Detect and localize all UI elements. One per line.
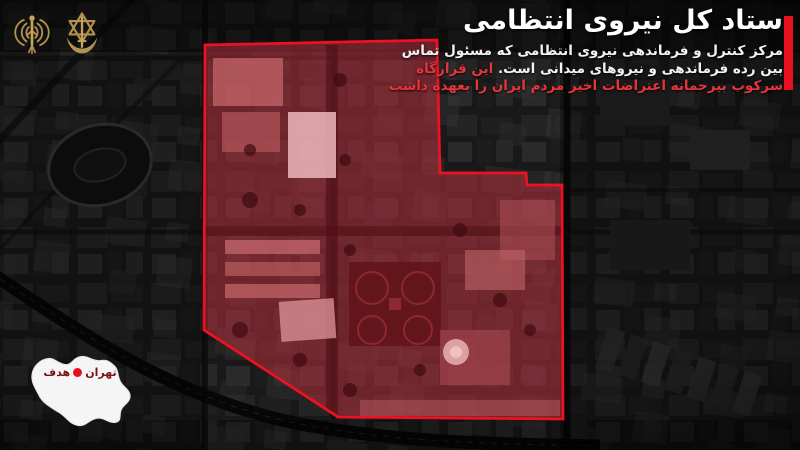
iran-silhouette-icon: [20, 344, 140, 444]
emblem-group: [14, 9, 103, 56]
radio-waves-antenna-emblem-icon: [14, 9, 50, 56]
desc-line-2-highlight: این قرارگاه: [416, 61, 493, 77]
target-marker-dot: [73, 368, 82, 377]
headline-description: مرکز کنترل و فرماندهی نیروی انتظامی که م…: [389, 43, 783, 96]
city-label: تهران: [85, 367, 116, 378]
desc-line-3-highlight: سرکوب بیرحمانه اعتراضات اخیر مردم ایران …: [389, 78, 783, 96]
iran-map-inset: تهران هدف: [20, 344, 140, 444]
headline-title: ستاد کل نیروی انتظامی: [389, 3, 783, 38]
idf-star-sword-emblem-icon: [61, 9, 103, 56]
infographic-canvas: ستاد کل نیروی انتظامی مرکز کنترل و فرمان…: [0, 0, 800, 450]
desc-line-2: بین رده فرماندهی و نیروهای میدانی است. ا…: [389, 61, 783, 79]
headline-accent-bar: [784, 16, 793, 90]
target-label: هدف: [43, 367, 70, 378]
desc-line-1: مرکز کنترل و فرماندهی نیروی انتظامی که م…: [389, 43, 783, 61]
map-label-row: تهران هدف: [30, 367, 130, 378]
headline-block: ستاد کل نیروی انتظامی مرکز کنترل و فرمان…: [389, 3, 783, 96]
